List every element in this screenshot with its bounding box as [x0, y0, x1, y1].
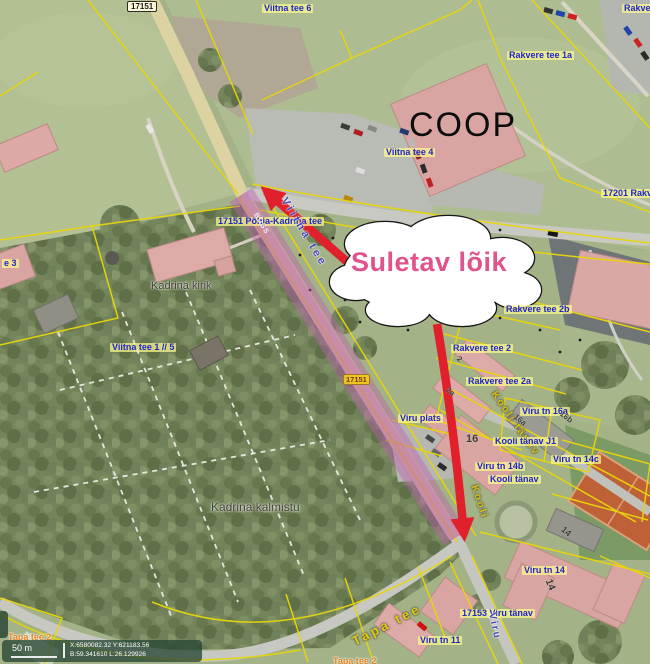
label-rakvere-tee-2b: Rakvere tee 2b: [504, 305, 572, 314]
label-viitna-tee-3-clipped: e 3: [2, 259, 19, 268]
map-statusbar: 50 m X:6580082.32 Y:621183.56 B:59.34161…: [2, 640, 202, 662]
label-rakvere-clipped: Rakver: [622, 4, 650, 13]
statusbar-divider: [63, 643, 65, 658]
label-kooli-tanav-j1: Kooli tänav J1: [493, 437, 558, 446]
label-kooli-tanav-blue: Kooli tänav: [488, 475, 541, 484]
coords-bl: B:59.341610 L:26.129926: [70, 651, 149, 660]
label-viru-tn-11: Viru tn 11: [418, 636, 462, 645]
scale-indicator: 50 m: [12, 643, 32, 653]
panel-toggle-tab[interactable]: [0, 611, 8, 638]
label-viru-tn-14: Viru tn 14: [522, 566, 567, 575]
label-coop-store: COOP: [409, 106, 517, 145]
label-rakvere-tee-2: Rakvere tee 2: [451, 344, 513, 353]
label-17201-rakvere: 17201 Rakv: [601, 189, 650, 198]
round-planter: [497, 503, 535, 541]
scale-bar-line: [11, 656, 57, 658]
label-viitna-tee-1-5: Viitna tee 1 // 5: [110, 343, 176, 352]
cursor-coordinates: X:6580082.32 Y:621183.56 B:59.341610 L:2…: [70, 642, 149, 659]
label-pohja-kadrina-tee: 17151 Põhja-Kadrina tee: [216, 217, 324, 226]
map-viewport[interactable]: 17151 Viitna tee 6 Rakver Rakvere tee 1a…: [0, 0, 650, 664]
label-viitna-tee-4: Viitna tee 4: [384, 148, 435, 157]
housenum-16: 16: [466, 434, 478, 446]
label-rakvere-tee-2a: Rakvere tee 2a: [466, 377, 533, 386]
road-badge-17151-top: 17151: [127, 1, 157, 12]
road-badge-17151-mid: 17151: [343, 374, 370, 385]
label-viru-tn-14c: Viru tn 14c: [551, 455, 601, 464]
label-viitna-tee-6: Viitna tee 6: [262, 4, 313, 13]
label-kadrina-kalmistu: Kadrina kalmistu: [211, 501, 300, 514]
coords-xy: X:6580082.32 Y:621183.56: [70, 642, 149, 651]
label-rakvere-tee-1a: Rakvere tee 1a: [507, 51, 574, 60]
label-kadrina-kirik: Kadrina kirik: [151, 281, 212, 293]
label-viru-tn-14b: Viru tn 14b: [475, 462, 525, 471]
label-tapa-tee-2-clipped: Tapa tee 2: [333, 657, 376, 664]
callout-suletav-loik: Suletav lõik: [351, 247, 507, 278]
label-viru-plats: Viru plats: [398, 414, 443, 423]
